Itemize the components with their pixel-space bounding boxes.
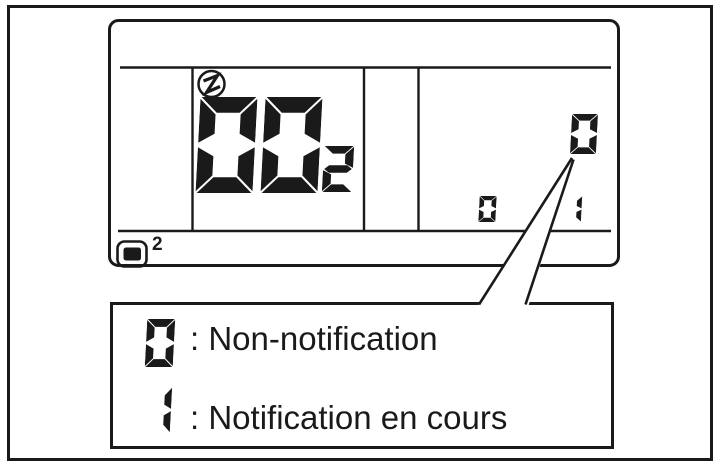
seven-segment-glyph bbox=[570, 114, 598, 154]
diagram-canvas bbox=[0, 0, 717, 465]
seven-segment-glyph bbox=[145, 387, 172, 433]
small-left-digit bbox=[478, 196, 496, 222]
legend-item-0-digit bbox=[145, 319, 176, 367]
legend-item-1-label: : Notification en cours bbox=[190, 400, 507, 436]
seven-segment-glyph bbox=[563, 196, 582, 222]
unit-number-subscript-digit bbox=[322, 146, 354, 192]
unit-number-digit-1 bbox=[195, 97, 257, 193]
seven-segment-glyph bbox=[145, 319, 176, 367]
seven-segment-glyph bbox=[322, 146, 354, 192]
legend-item-0-label: : Non-notification bbox=[190, 321, 438, 357]
small-right-digit bbox=[563, 196, 582, 222]
seven-segment-glyph bbox=[195, 97, 257, 193]
manual-figure: 2 : Non-notification : Notification en c… bbox=[0, 0, 717, 465]
seven-segment-glyph bbox=[478, 196, 496, 222]
rounded-screen-icon-screen bbox=[124, 248, 142, 261]
legend-item-1-digit bbox=[145, 387, 172, 433]
seven-segment-glyph bbox=[260, 97, 322, 193]
unit-display-count: 2 bbox=[152, 235, 163, 254]
notification-status-digit bbox=[570, 114, 598, 154]
unit-number-digit-2 bbox=[260, 97, 322, 193]
